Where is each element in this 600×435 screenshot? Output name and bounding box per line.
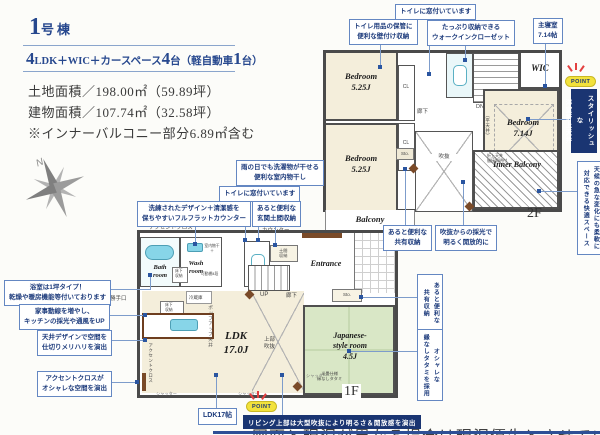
indoor-drying-label: 室内物干＋ — [203, 244, 221, 253]
footer-rule — [213, 431, 600, 434]
fridge-label: 冷蔵庫 — [189, 295, 203, 301]
wic-2f: WIC — [519, 53, 559, 89]
callout-shared-storage-1f: あると便利な 共有収納 — [417, 274, 443, 332]
closet-b-label: CL — [400, 140, 412, 146]
shutter-label-1: シャッター — [156, 391, 177, 396]
leader-dot — [461, 180, 465, 184]
area-info: 土地面積／198.00㎡（59.89坪） 建物面積／107.74㎡（32.58坪… — [28, 82, 255, 144]
callout-wic-2f: たっぷり収納できる ウォークインクローゼット — [427, 20, 515, 46]
leader-dot — [243, 238, 247, 242]
bedroom-b-2f: Bedroom 5.25J — [326, 123, 398, 215]
stairs-up-label: UP — [260, 292, 268, 300]
header-divider-bottom — [23, 71, 235, 72]
building-number-suffix: 号棟 — [41, 22, 73, 37]
compass-rose: N — [22, 155, 88, 221]
balcony-name: Balcony — [326, 214, 414, 225]
underfloor-kitchen-label: 床下 収納 — [165, 303, 173, 312]
callout-ldk-size: LDK17帖 — [198, 408, 237, 425]
area-note: ※インナーバルコニー部分6.89㎡含む — [28, 124, 255, 145]
storage-1f: Sto. — [332, 289, 362, 302]
storage-2f: Sto. — [396, 148, 414, 160]
layout-spec: 4LDK＋WIC＋カースペース4台（軽自動車1台） — [26, 49, 263, 69]
leader-dot — [256, 238, 260, 242]
callout-void-light-2f: 吹抜からの採光で 明るく開放的に — [435, 225, 497, 251]
spec-text-2: 台（軽自動車 — [170, 56, 233, 67]
flat-ceiling-label: （平天井） — [485, 113, 491, 138]
leader-dot — [143, 338, 147, 342]
bedroom-a-2f: Bedroom 5.25J — [326, 53, 398, 121]
leader-dot — [347, 349, 351, 353]
accent-wall — [142, 373, 146, 391]
bedroom-a-name: Bedroom 5.25J — [326, 71, 396, 93]
spec-text-1: LDK＋WIC＋カースペース — [35, 56, 162, 67]
upper-void-label: 上部 吹抜 — [264, 337, 275, 351]
bedroom-b-name: Bedroom 5.25J — [326, 153, 396, 175]
bathroom-1f: Bath room — [140, 237, 180, 287]
point-badge-1f: POINT — [246, 401, 277, 412]
leader-dot — [427, 72, 431, 76]
callout-wall-storage-2f: トイレ用品の保管に 便利な壁付け収納 — [349, 19, 418, 45]
toilet-2f — [446, 53, 473, 98]
leader-dot — [403, 167, 407, 171]
bathroom-name: Bath room — [141, 264, 179, 281]
callout-shared-storage-2f: あると便利な 共有収納 — [383, 225, 432, 251]
leader-line — [362, 297, 417, 298]
building-area: 建物面積／107.74㎡（32.58坪） — [28, 103, 255, 124]
spec-num-3: 1 — [233, 49, 242, 68]
building-number: 1 — [29, 14, 41, 40]
floor1-label: 1F — [342, 384, 361, 400]
leader-line — [282, 376, 283, 415]
floorplan-flyer: 1号棟 4LDK＋WIC＋カースペース4台（軽自動車1台） 土地面積／198.0… — [0, 0, 600, 435]
closet-a-label: CL — [400, 84, 412, 90]
leader-line — [540, 191, 577, 192]
leader-dot — [148, 273, 152, 277]
ldk-name: LDK 17.0J — [210, 329, 262, 358]
callout-inner-balcony-2f: 天候の急な変化にも柔軟に 対応できる快適スペース — [577, 161, 600, 255]
storage-2f-label: Sto. — [397, 151, 413, 157]
point-badge-2f: POINT — [565, 76, 596, 87]
storage-1f-label: Sto. — [333, 292, 361, 298]
callout-bath-1f: 浴室は1坪タイプ！ 乾燥や暖房機能等付いております — [4, 280, 111, 306]
doma-storage-label: 土間 収納 — [279, 248, 287, 259]
floor1-plan: LDK 17.0J 上部 吹抜 アクセントクロス Bath room Wash … — [137, 230, 398, 398]
callout-main-bedroom-2f: 主寝室 7.14帖 — [533, 18, 563, 44]
leader-line — [463, 183, 464, 225]
leader-dot — [359, 295, 363, 299]
kitchen-counter — [142, 313, 214, 339]
callout-kitchen-flow-1f: 家事動線を増やし、 キッチンの採光や通風をUP — [19, 304, 110, 330]
building-title: 1号棟 — [29, 14, 73, 41]
callout-toilet-window-1f: トイレに窓付いています — [219, 186, 300, 202]
land-area: 土地面積／198.00㎡（59.89坪） — [28, 82, 255, 103]
spec-text-3: 台） — [242, 56, 263, 67]
floor2-label: 2F — [527, 206, 542, 222]
leader-dot — [280, 373, 284, 377]
closet-a-2f: CL — [398, 65, 415, 121]
leader-dot — [463, 58, 467, 62]
callout-indoor-drying-1f: 雨の日でも洗濯物が干せる 便利な室内物干し — [236, 160, 324, 186]
accent-cloth-vertical-label: アクセントクロス — [148, 343, 154, 383]
leader-line — [216, 376, 217, 408]
callout-tatami-1f: オシャレな 縁なしタタミを採用 — [417, 329, 443, 401]
stairs-up-1f — [248, 265, 290, 291]
sparkle-icon — [568, 63, 584, 73]
leader-dot — [143, 313, 147, 317]
japanese-room-name: Japanese- style room 4.5J — [311, 331, 389, 362]
compass-icon: N — [22, 155, 88, 221]
underfloor-wash-label: 床下 収納 — [175, 269, 183, 278]
leader-line — [107, 289, 150, 290]
doma-storage-1f: 土間 収納 — [270, 245, 298, 262]
bathtub-icon — [145, 245, 174, 260]
leader-line — [405, 170, 406, 225]
sparkle-icon — [250, 391, 266, 401]
leader-dot — [135, 380, 139, 384]
leader-dot — [526, 117, 530, 121]
entrance-door — [302, 233, 342, 238]
toilet-icon-2f — [453, 65, 467, 86]
callout-ceiling-design-1f: 天井デザインで空間を 仕切りメリハリを演出 — [37, 330, 112, 356]
kitchen-sink-icon — [170, 319, 198, 331]
spec-num-2: 4 — [162, 49, 171, 68]
leader-dot — [193, 242, 197, 246]
popup-ceiling-label: ポップアップ天井 — [206, 305, 212, 347]
bedroom-main-name: Bedroom 7.14J — [489, 117, 557, 139]
leader-dot — [214, 373, 218, 377]
callout-entrance-storage-1f: あると便利な 玄関土間収納 — [252, 201, 301, 227]
callout-toilet-window-2f: トイレに窓付いています — [395, 4, 476, 20]
spec-num-1: 4 — [26, 49, 35, 68]
inner-balcony-2f: Inner Balcony — [473, 150, 559, 209]
inner-balcony-name: Inner Balcony — [477, 160, 557, 170]
floor2-plan: Bedroom 5.25J CL 廊下 DN Bedroom 7.14J （平天… — [323, 50, 562, 212]
leader-line — [150, 275, 151, 290]
callout-accent-cloth-1f: アクセントクロスが オシャレな空間を演出 — [37, 371, 112, 397]
fridge-1f: 冷蔵庫 — [186, 291, 212, 304]
shutter-label-3: シャッター — [306, 373, 327, 378]
hallway-label-2f: 廊下 — [417, 109, 428, 116]
leader-dot — [273, 243, 277, 247]
kitchen-door-label: 勝手口 — [110, 296, 127, 303]
leader-line — [105, 315, 145, 316]
leader-dot — [378, 65, 382, 69]
movable-shelf-label: 可動棚4段 — [201, 272, 218, 277]
header-divider-top — [23, 45, 235, 46]
callout-flat-counter-1f: 洗練されたデザイン＋清潔感を 保ちやすいフルフラットカウンター — [137, 201, 251, 227]
void-label: 吹抜 — [430, 154, 458, 161]
leader-line — [107, 340, 145, 341]
void-2f: 吹抜 — [415, 131, 473, 212]
entrance-name: Entrance — [300, 259, 352, 269]
hallway-label-1f: 廊下 — [286, 293, 297, 300]
wic-name: WIC — [521, 63, 559, 75]
stairs-dn-label: DN — [476, 104, 484, 111]
leader-line — [350, 351, 417, 352]
point-banner-2f: スタイリッシュな 洋室折上天井 — [571, 89, 597, 153]
leader-dot — [537, 189, 541, 193]
leader-dot — [543, 84, 547, 88]
